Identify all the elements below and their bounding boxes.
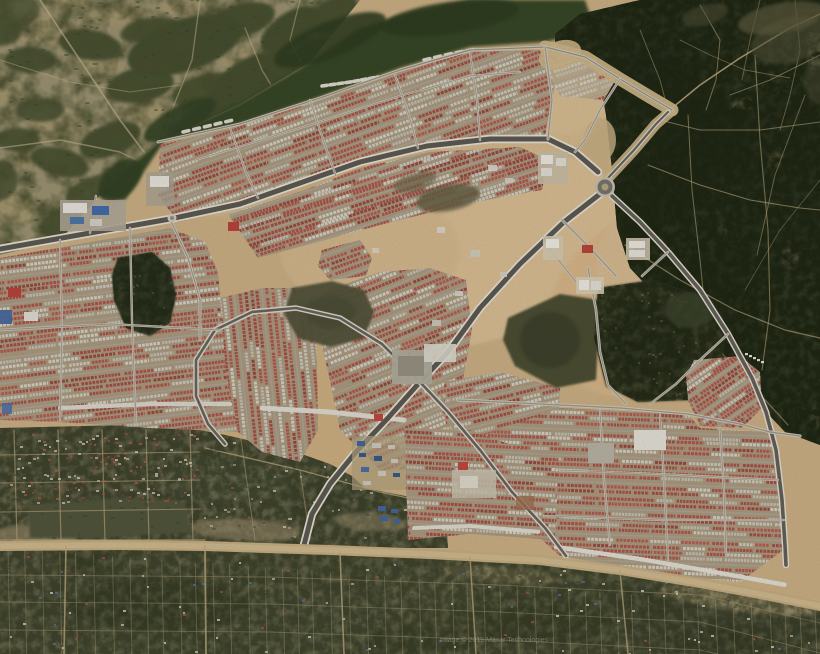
svg-text:Image © 2019 Maxar Technologie: Image © 2019 Maxar Technologies [440, 636, 549, 644]
